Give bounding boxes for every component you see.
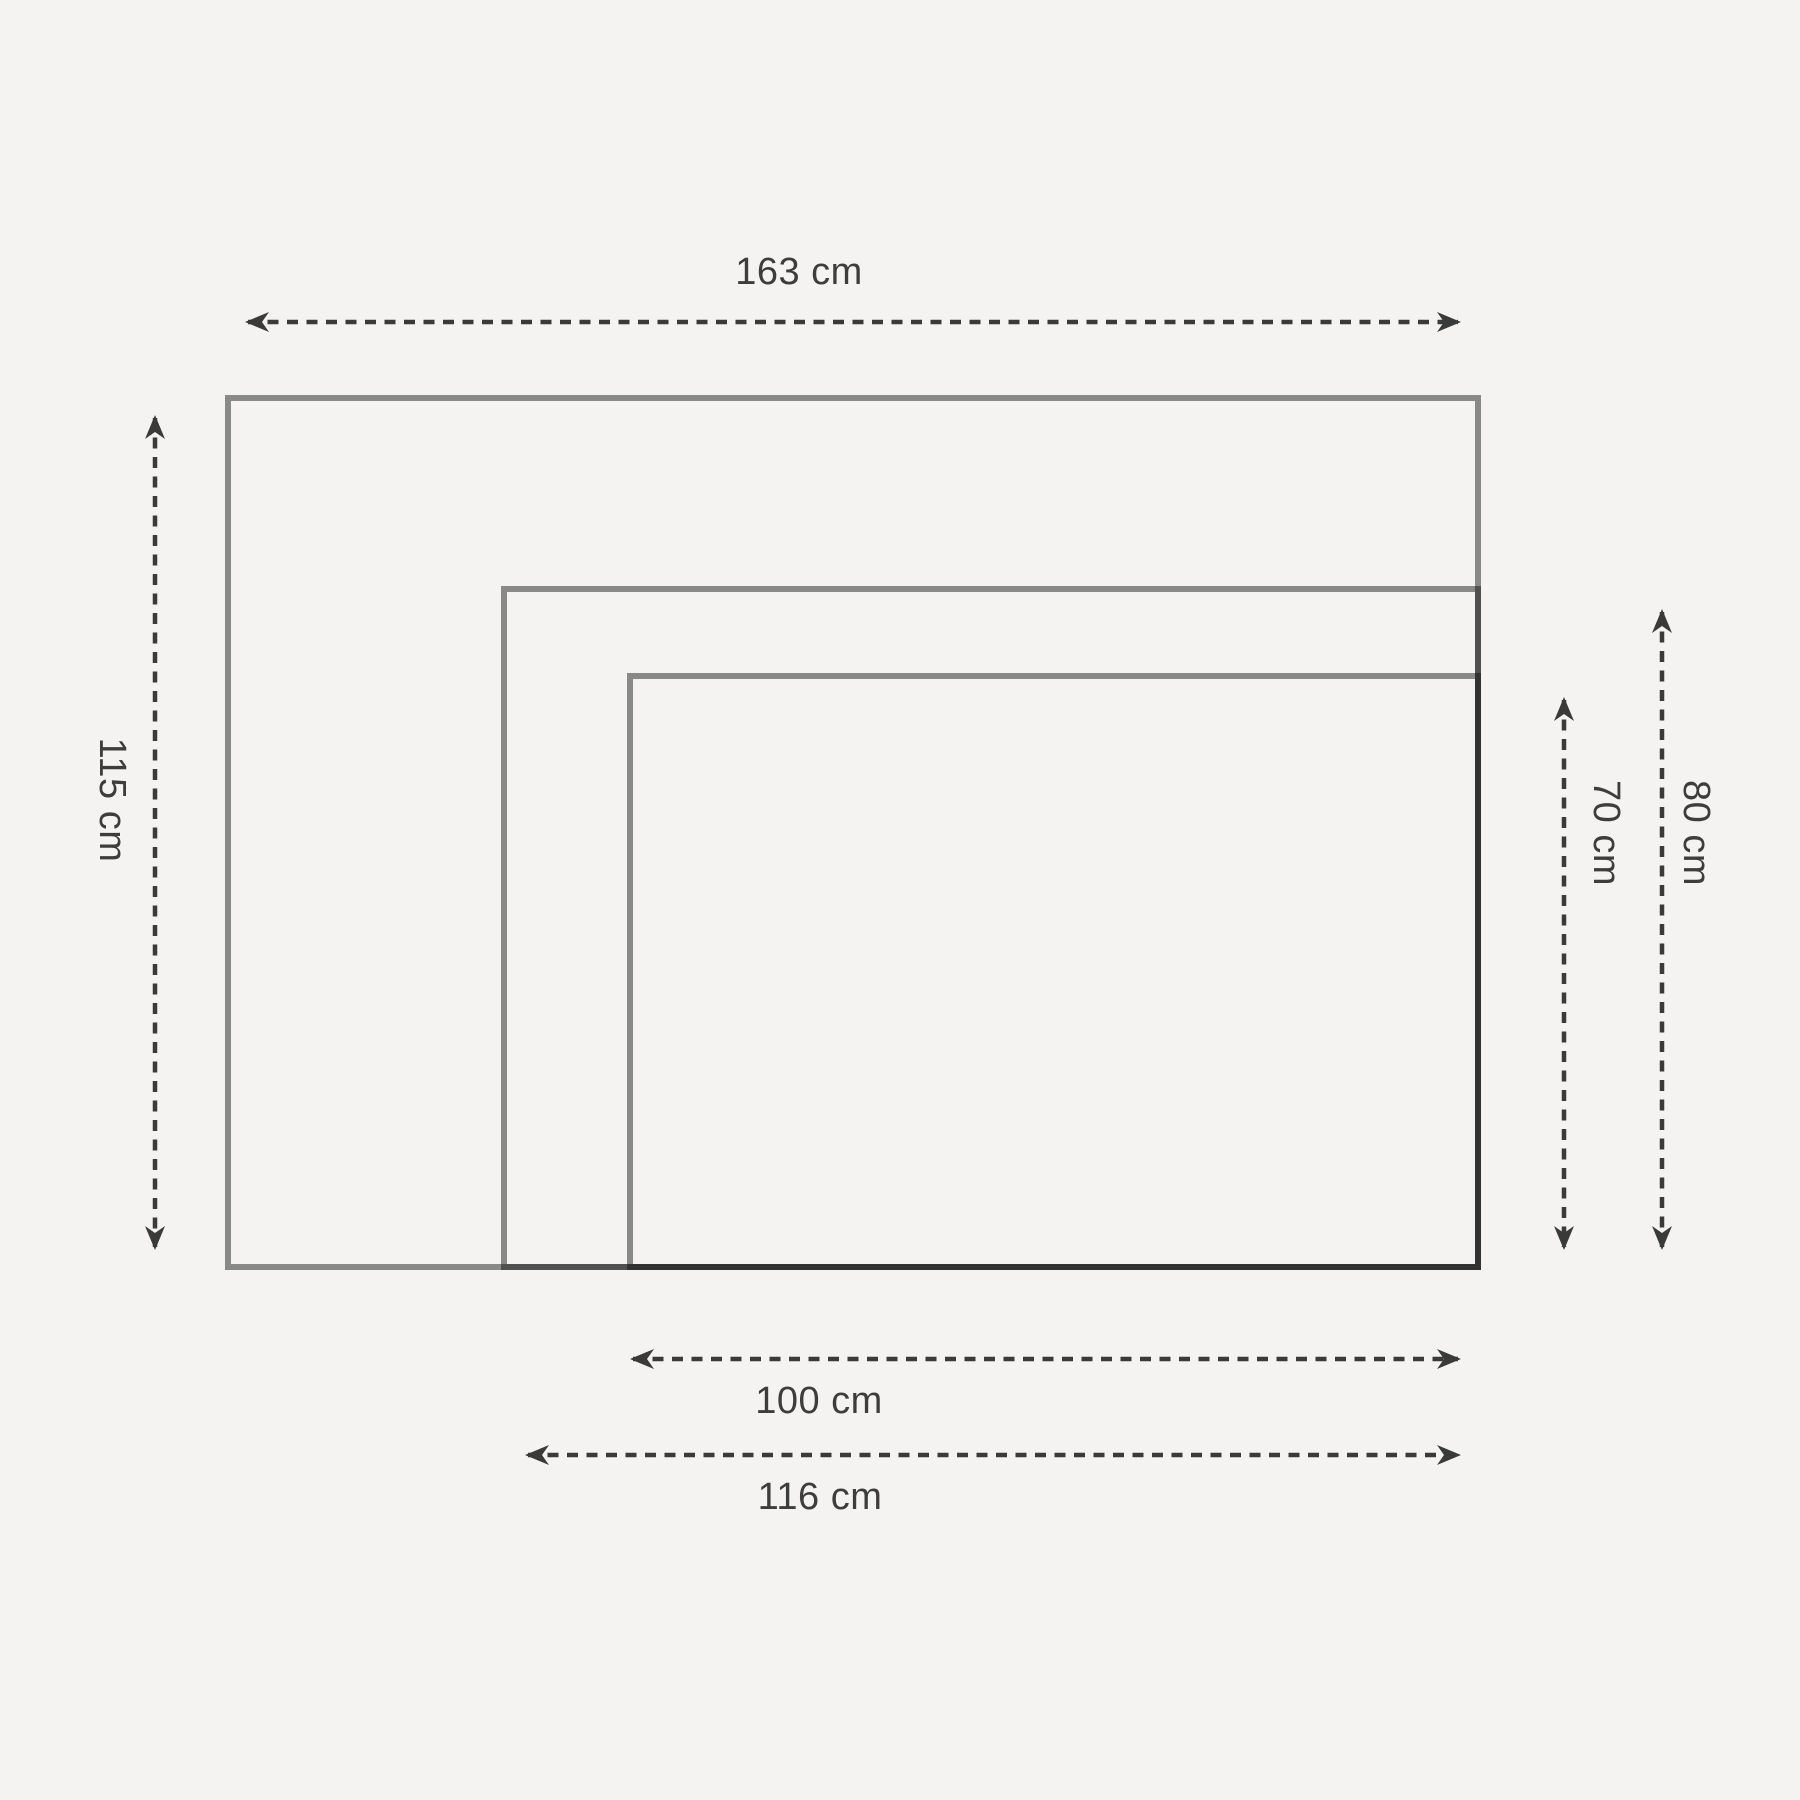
diagram-canvas [0,0,1800,1800]
middle-rectangle [504,589,1478,1267]
middle-width-label: 116 cm [758,1478,883,1516]
top-width-label: 163 cm [735,253,863,291]
left-height-label: 115 cm [93,738,131,863]
outer-rectangle [228,398,1478,1267]
dimension-diagram: 163 cm 115 cm 70 cm 80 cm 100 cm 116 cm [0,0,1800,1800]
inner-height-label: 70 cm [1587,780,1625,886]
inner-width-label: 100 cm [755,1382,883,1420]
middle-height-label: 80 cm [1677,780,1715,886]
inner-rectangle [630,676,1478,1267]
